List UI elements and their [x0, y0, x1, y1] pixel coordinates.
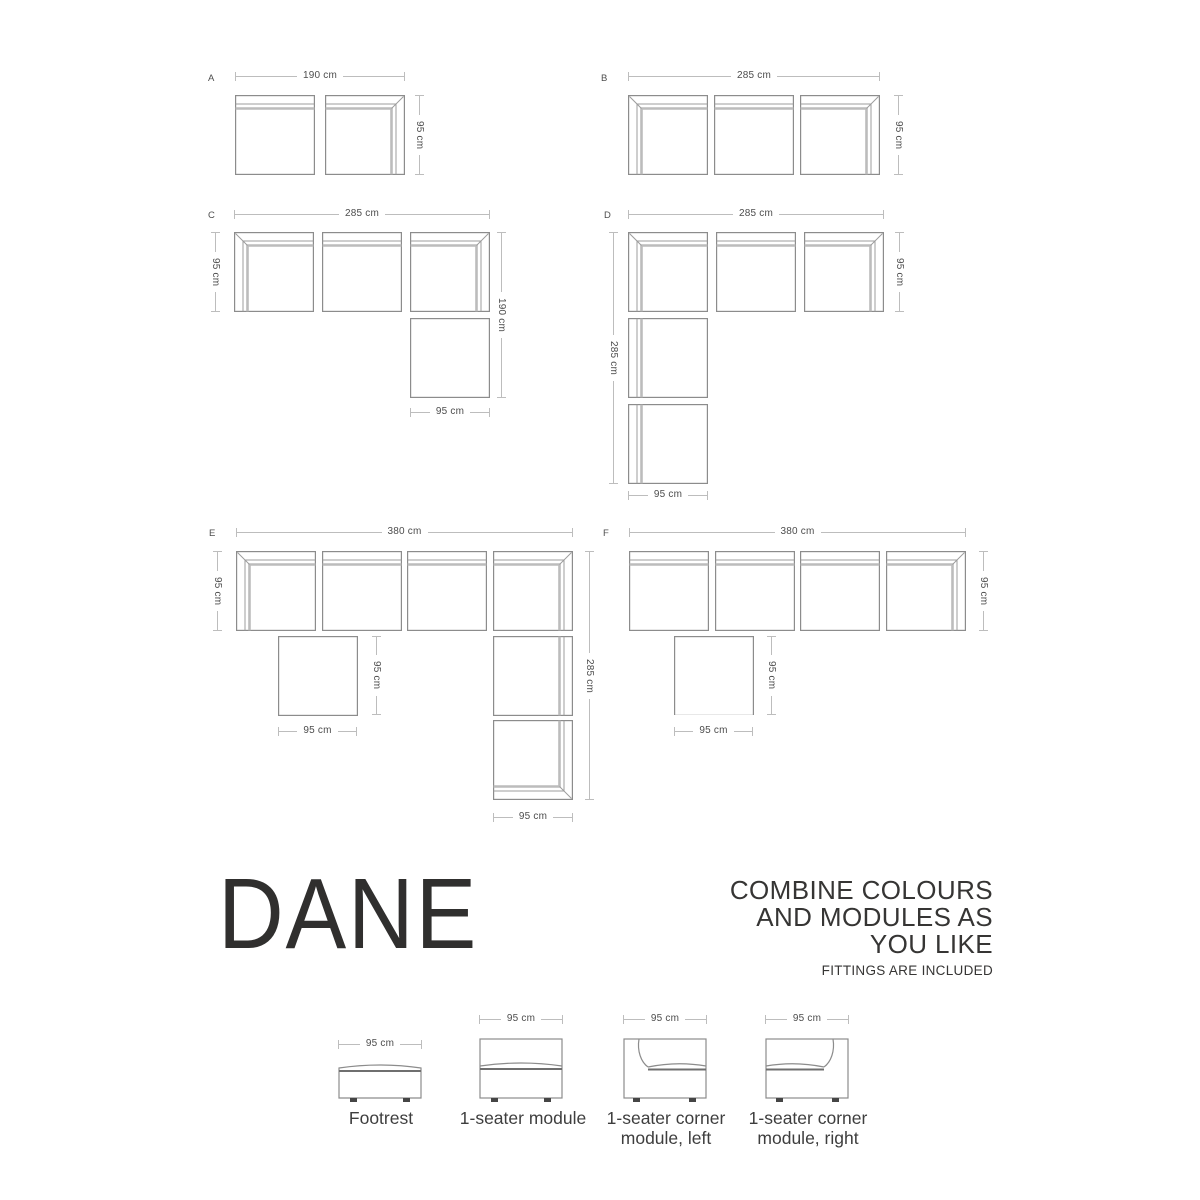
- config-e-letter: E: [209, 529, 216, 539]
- tagline-line-3: YOU LIKE: [730, 931, 993, 958]
- dim-tick: [752, 727, 753, 736]
- dim-line: [983, 552, 984, 571]
- config-e-bottom-dimension: 95 cm: [493, 812, 573, 822]
- dim-line: [624, 1019, 645, 1020]
- module-corner-right-top-view: [887, 552, 966, 631]
- module-1-seater-top-view-vertical: [494, 637, 573, 716]
- dim-line: [235, 214, 339, 215]
- dim-line: [385, 214, 489, 215]
- config-d-letter: D: [604, 211, 611, 221]
- dim-line: [688, 495, 707, 496]
- dim-line: [629, 76, 731, 77]
- dim-tick: [572, 528, 573, 537]
- config-b-drawing: [628, 95, 880, 175]
- dim-line: [338, 731, 356, 732]
- module-corner-bottom-top-view: [494, 721, 573, 800]
- dim-line: [419, 96, 420, 115]
- config-e-left-dimension: 95 cm: [212, 551, 222, 631]
- config-d-right-dimension: 95 cm: [894, 232, 904, 312]
- config-d-bottom-dimension: 95 cm: [628, 490, 708, 500]
- dim-line: [376, 637, 377, 655]
- dim-line: [771, 696, 772, 714]
- tagline-line-1: COMBINE COLOURS: [730, 877, 993, 904]
- dim-line: [899, 233, 900, 252]
- dim-line: [411, 412, 430, 413]
- module-corner-right-top-view: [411, 233, 490, 312]
- dim-tick: [883, 210, 884, 219]
- config-f-footrest-side-dimension: 95 cm: [766, 636, 776, 715]
- dim-line: [541, 1019, 562, 1020]
- dim-value: 95 cm: [787, 1014, 827, 1024]
- module-1-seater-top-view-vertical: [629, 405, 708, 484]
- dim-line: [779, 214, 883, 215]
- config-f-drawing: [629, 551, 966, 715]
- dim-value: 95 cm: [693, 726, 733, 736]
- config-b-top-dimension: 285 cm: [628, 71, 880, 81]
- dim-line: [236, 76, 297, 77]
- dim-tick: [213, 630, 222, 631]
- config-c-letter: C: [208, 211, 215, 221]
- legend-seater-dimension: 95 cm: [479, 1014, 563, 1024]
- config-d-top-dimension: 285 cm: [628, 209, 884, 219]
- dim-tick: [707, 491, 708, 500]
- dim-tick: [497, 397, 506, 398]
- config-f-letter: F: [603, 529, 609, 539]
- config-e-footrest-side-dimension: 95 cm: [371, 636, 381, 715]
- dim-line: [777, 76, 879, 77]
- module-1-seater-top-view: [323, 233, 402, 312]
- dim-value: 95 cm: [766, 655, 776, 695]
- dim-tick: [706, 1015, 707, 1024]
- dim-line: [629, 495, 648, 496]
- legend-corner-left-drawing: [623, 1038, 707, 1104]
- config-d-drawing: [628, 232, 884, 484]
- config-f-footrest-bottom-dimension: 95 cm: [674, 726, 753, 736]
- dim-line: [821, 532, 966, 533]
- module-footrest-top-view: [279, 637, 358, 716]
- dim-line: [217, 611, 218, 630]
- tagline-line-2: AND MODULES AS: [730, 904, 993, 931]
- dim-line: [827, 1019, 848, 1020]
- dim-line: [766, 1019, 787, 1020]
- module-1-seater-top-view: [717, 233, 796, 312]
- dim-line: [629, 214, 733, 215]
- module-corner-left-top-view: [629, 233, 708, 312]
- dim-line: [343, 76, 404, 77]
- dim-value: 190 cm: [496, 292, 506, 338]
- legend-corner-right-drawing: [765, 1038, 849, 1104]
- legend-corner-left-label: 1-seater corner module, left: [591, 1108, 741, 1148]
- config-e-drawing: [236, 551, 573, 800]
- tagline: COMBINE COLOURS AND MODULES AS YOU LIKE …: [730, 877, 993, 979]
- config-f-right-dimension: 95 cm: [978, 551, 988, 631]
- dim-value: 95 cm: [978, 571, 988, 611]
- module-1-seater-top-view: [801, 552, 880, 631]
- dim-line: [470, 412, 489, 413]
- legend-corner-right-dimension: 95 cm: [765, 1014, 849, 1024]
- module-corner-right-top-view: [801, 96, 880, 175]
- dim-tick: [848, 1015, 849, 1024]
- dim-value: 95 cm: [501, 1014, 541, 1024]
- dim-line: [630, 532, 775, 533]
- dim-tick: [372, 714, 381, 715]
- dim-line: [675, 731, 693, 732]
- config-c-drawing: [234, 232, 490, 398]
- config-e-footrest-bottom-dimension: 95 cm: [278, 726, 357, 736]
- config-a-top-dimension: 190 cm: [235, 71, 405, 81]
- dim-line: [898, 155, 899, 174]
- dim-line: [553, 817, 572, 818]
- dim-line: [217, 552, 218, 571]
- dim-tick: [356, 727, 357, 736]
- dim-line: [501, 338, 502, 397]
- dim-value: 95 cm: [360, 1039, 400, 1049]
- dim-line: [771, 637, 772, 655]
- dim-line: [589, 552, 590, 653]
- dim-tick: [415, 174, 424, 175]
- dim-line: [480, 1019, 501, 1020]
- dim-line: [339, 1044, 360, 1045]
- config-b-right-dimension: 95 cm: [893, 95, 903, 175]
- module-corner-right-top-view: [326, 96, 405, 175]
- module-1-seater-top-view: [630, 552, 709, 631]
- dim-value: 95 cm: [297, 726, 337, 736]
- dim-tick: [572, 813, 573, 822]
- dim-value: 380 cm: [775, 527, 821, 537]
- dim-value: 95 cm: [513, 812, 553, 822]
- dim-value: 95 cm: [212, 571, 222, 611]
- module-corner-right-top-view: [805, 233, 884, 312]
- module-corner-left-top-view: [629, 96, 708, 175]
- config-c-right-dimension: 190 cm: [496, 232, 506, 398]
- dim-tick: [894, 174, 903, 175]
- module-footrest-top-view: [411, 319, 490, 398]
- config-e-right-dimension: 285 cm: [584, 551, 594, 800]
- legend-footrest-drawing: [338, 1060, 422, 1104]
- dim-tick: [421, 1040, 422, 1049]
- config-c-bottom-dimension: 95 cm: [410, 407, 490, 417]
- dim-tick: [404, 72, 405, 81]
- module-1-seater-top-view: [323, 552, 402, 631]
- dim-value: 95 cm: [414, 115, 424, 155]
- module-1-seater-top-view-vertical: [629, 319, 708, 398]
- dim-tick: [965, 528, 966, 537]
- config-f-top-dimension: 380 cm: [629, 527, 966, 537]
- dim-line: [400, 1044, 421, 1045]
- product-spec-poster: A 190 cm 95 cm B 285 cm 95 cm C 285 cm: [0, 0, 1200, 1200]
- dim-tick: [489, 210, 490, 219]
- module-1-seater-top-view: [408, 552, 487, 631]
- config-a-drawing: [235, 95, 405, 175]
- legend-corner-right-label: 1-seater corner module, right: [733, 1108, 883, 1148]
- module-corner-left-top-view: [237, 552, 316, 631]
- config-e-top-dimension: 380 cm: [236, 527, 573, 537]
- tagline-note: FITTINGS ARE INCLUDED: [730, 963, 993, 979]
- dim-line: [215, 233, 216, 252]
- dim-value: 190 cm: [297, 71, 343, 81]
- dim-tick: [585, 799, 594, 800]
- dim-value: 285 cm: [731, 71, 777, 81]
- config-d-left-dimension: 285 cm: [608, 232, 618, 484]
- dim-line: [613, 381, 614, 483]
- dim-tick: [562, 1015, 563, 1024]
- dim-value: 95 cm: [210, 252, 220, 292]
- module-1-seater-top-view: [715, 96, 794, 175]
- dim-line: [685, 1019, 706, 1020]
- dim-line: [589, 699, 590, 800]
- config-c-top-dimension: 285 cm: [234, 209, 490, 219]
- dim-line: [428, 532, 573, 533]
- dim-line: [376, 696, 377, 714]
- dim-value: 95 cm: [648, 490, 688, 500]
- legend-corner-left-dimension: 95 cm: [623, 1014, 707, 1024]
- dim-value: 285 cm: [608, 335, 618, 381]
- dim-value: 285 cm: [584, 653, 594, 699]
- config-a-right-dimension: 95 cm: [414, 95, 424, 175]
- dim-tick: [767, 714, 776, 715]
- config-b-letter: B: [601, 74, 608, 84]
- dim-line: [215, 292, 216, 311]
- module-1-seater-top-view: [236, 96, 315, 175]
- module-footrest-top-view: [675, 637, 754, 715]
- dim-value: 95 cm: [894, 252, 904, 292]
- dim-tick: [489, 408, 490, 417]
- dim-line: [279, 731, 297, 732]
- dim-line: [898, 96, 899, 115]
- dim-tick: [609, 483, 618, 484]
- dim-line: [613, 233, 614, 335]
- dim-tick: [895, 311, 904, 312]
- dim-value: 285 cm: [733, 209, 779, 219]
- brand-title: DANE: [218, 864, 478, 964]
- config-c-left-dimension: 95 cm: [210, 232, 220, 312]
- dim-line: [734, 731, 752, 732]
- dim-value: 95 cm: [645, 1014, 685, 1024]
- dim-value: 95 cm: [371, 655, 381, 695]
- module-corner-left-top-view: [235, 233, 314, 312]
- legend-footrest-dimension: 95 cm: [338, 1039, 422, 1049]
- dim-line: [419, 155, 420, 174]
- legend-seater-label: 1-seater module: [448, 1108, 598, 1128]
- dim-tick: [211, 311, 220, 312]
- dim-tick: [879, 72, 880, 81]
- module-1-seater-top-view: [716, 552, 795, 631]
- dim-line: [501, 233, 502, 292]
- dim-value: 285 cm: [339, 209, 385, 219]
- dim-line: [237, 532, 382, 533]
- dim-line: [899, 292, 900, 311]
- module-corner-right-top-view: [494, 552, 573, 631]
- dim-line: [983, 611, 984, 630]
- dim-tick: [979, 630, 988, 631]
- dim-value: 380 cm: [382, 527, 428, 537]
- dim-line: [494, 817, 513, 818]
- legend-footrest-label: Footrest: [306, 1108, 456, 1128]
- config-a-letter: A: [208, 74, 215, 84]
- dim-value: 95 cm: [430, 407, 470, 417]
- legend-seater-drawing: [479, 1038, 563, 1104]
- dim-value: 95 cm: [893, 115, 903, 155]
